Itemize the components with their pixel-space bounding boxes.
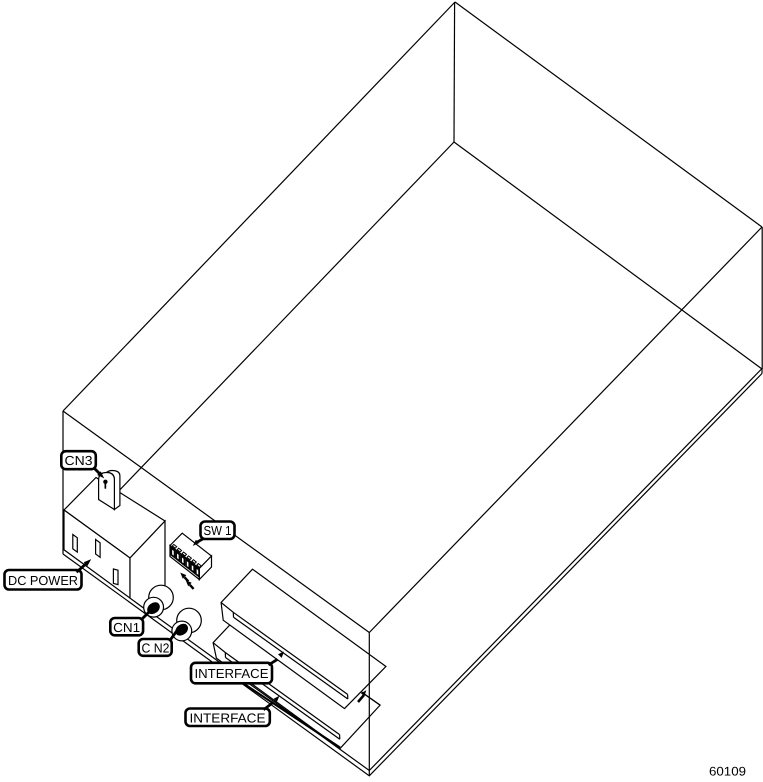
svg-text:C N2: C N2 (142, 640, 170, 655)
svg-text:60109: 60109 (709, 765, 746, 779)
svg-text:INTERFACE: INTERFACE (195, 666, 269, 681)
svg-text:INTERFACE: INTERFACE (190, 710, 266, 725)
svg-text:CN3: CN3 (65, 453, 93, 468)
svg-text:SW 1: SW 1 (204, 523, 232, 538)
svg-text:DC POWER: DC POWER (8, 573, 78, 588)
svg-text:CN1: CN1 (113, 620, 140, 635)
